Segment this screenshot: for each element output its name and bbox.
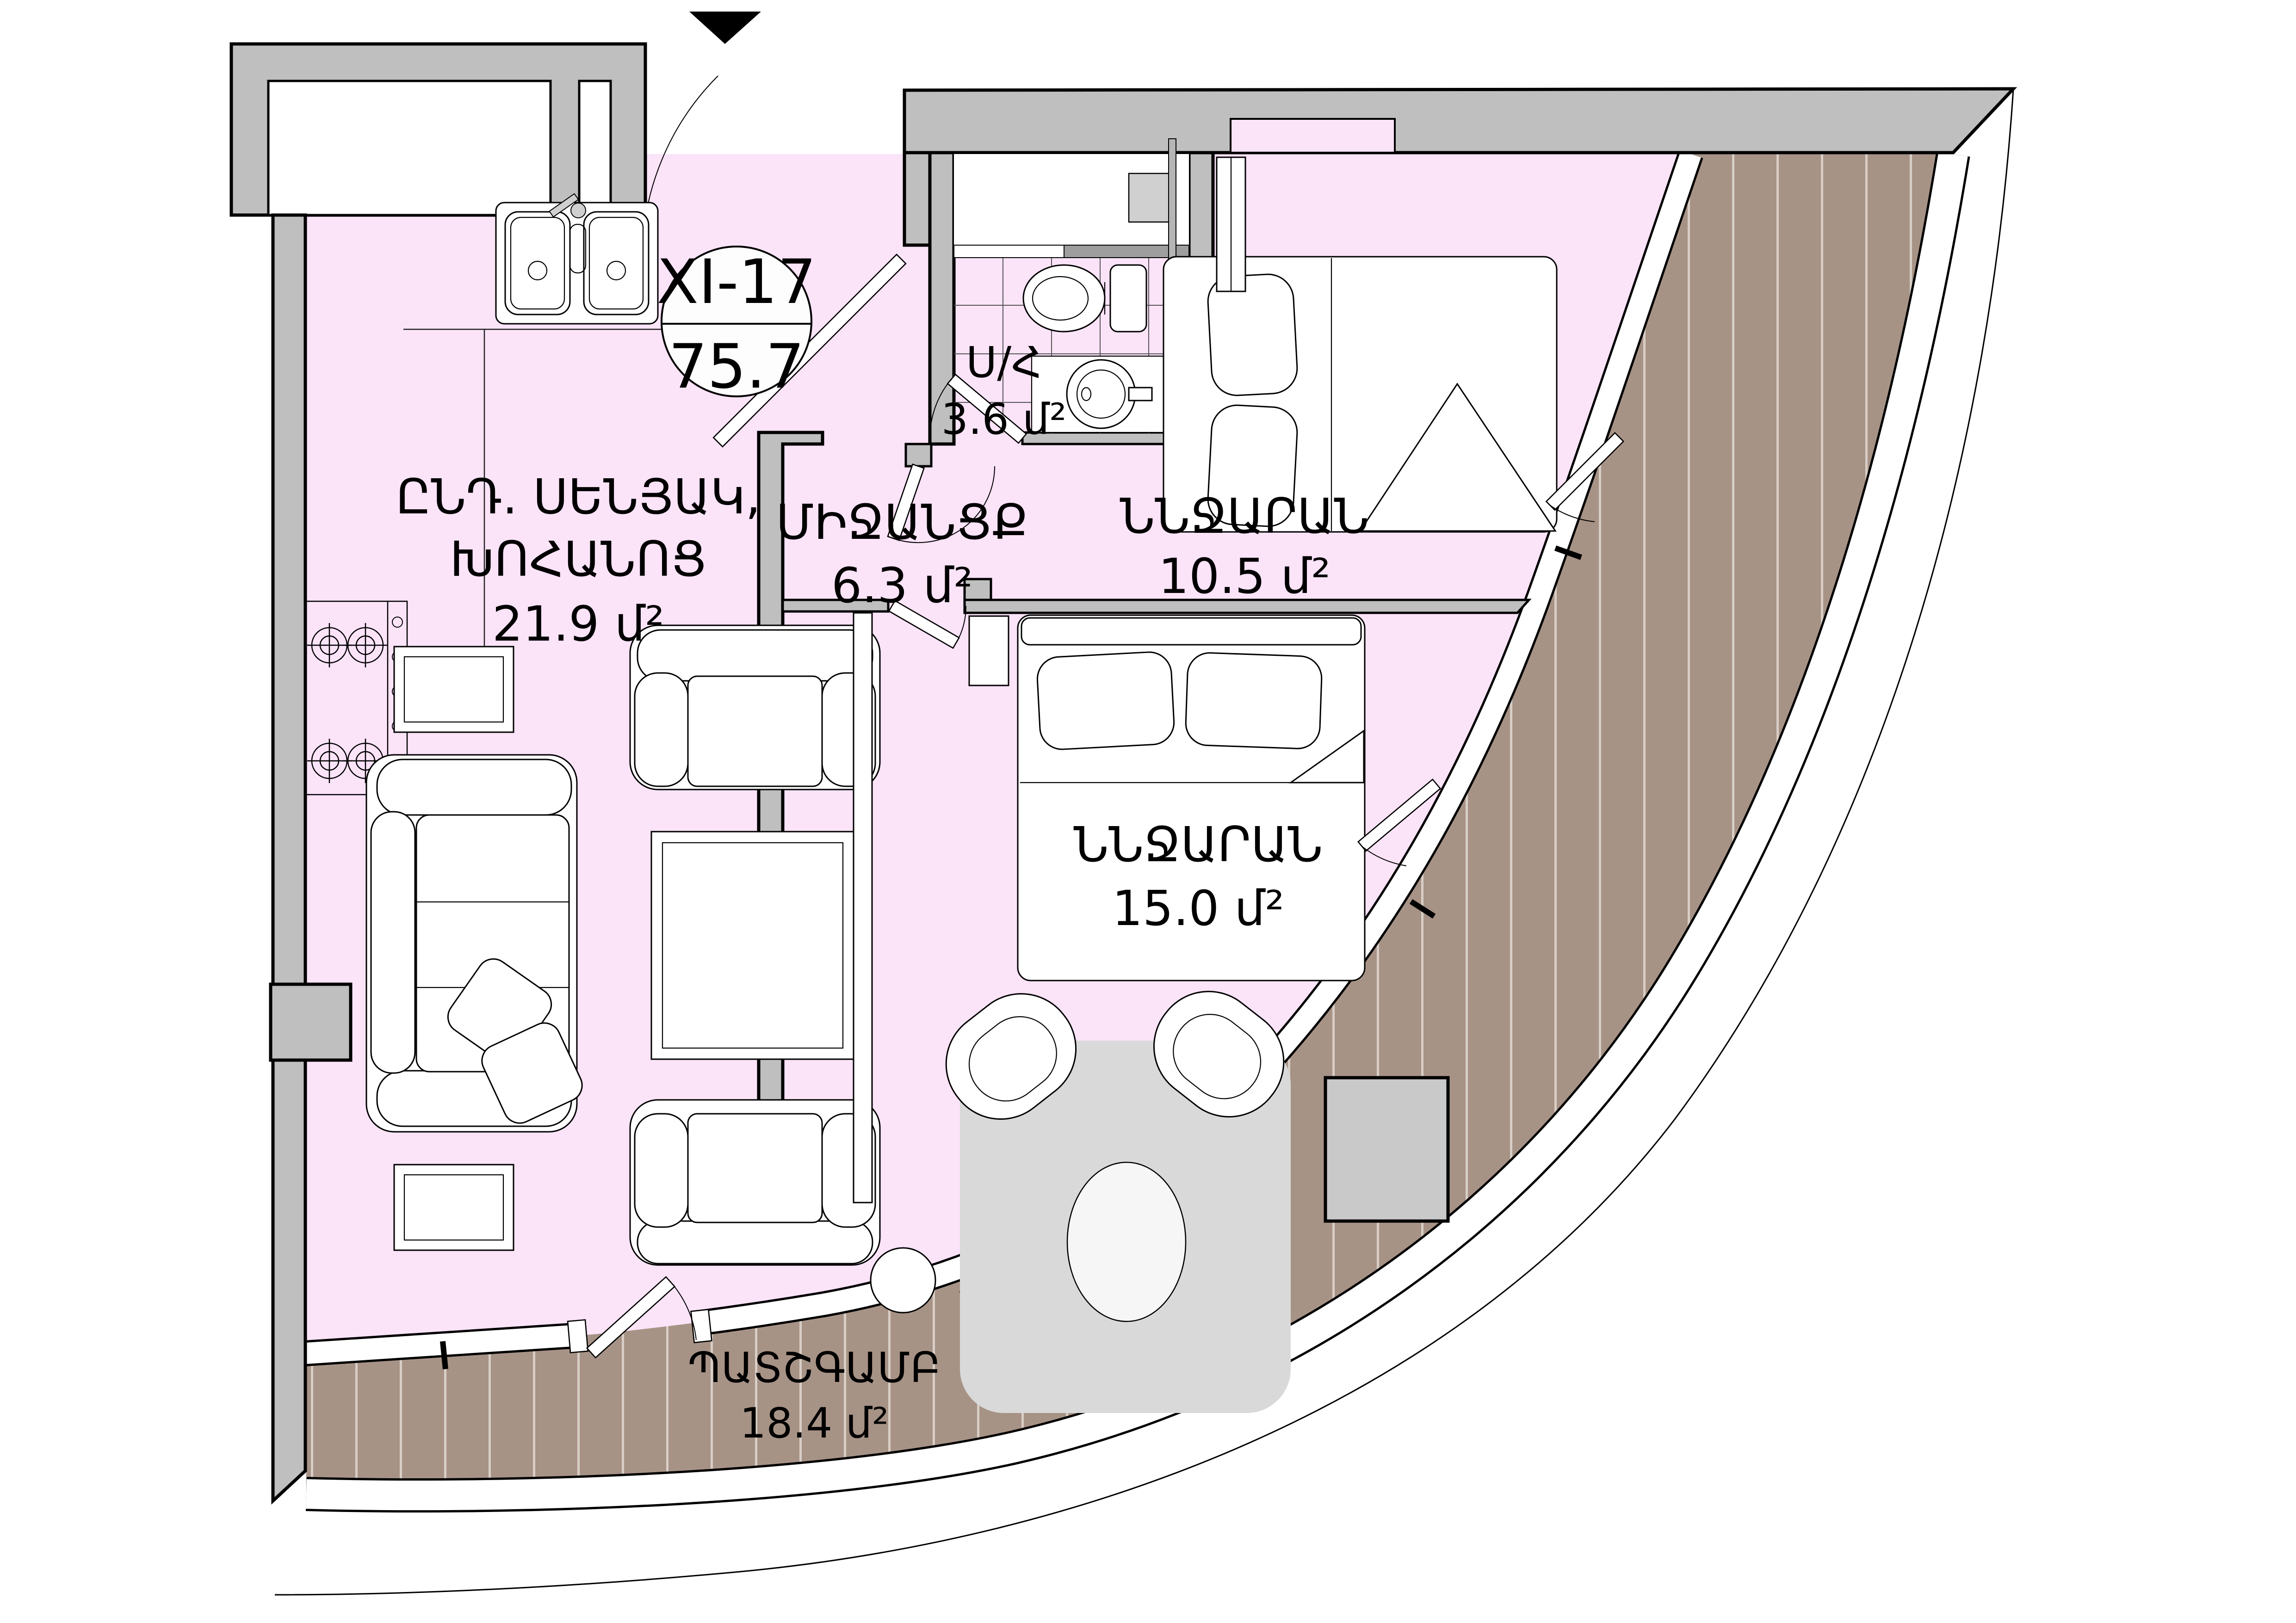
shower-unit-icon — [1129, 173, 1171, 222]
nightstand — [969, 616, 1009, 685]
sofa — [366, 755, 588, 1132]
unit-code: XI-17 — [657, 247, 817, 318]
hallway-area: 6.3 մ² — [831, 557, 973, 614]
floor-plan-page: ԸՆԴ. ՍԵՆՅԱԿ, ԽՈՀԱՆՈՑ 21.9 մ² ՄԻՋԱՆՑՔ 6.3… — [0, 0, 2296, 1623]
bedroom-large-area: 15.0 մ² — [1112, 880, 1284, 937]
hallway-label: ՄԻՋԱՆՑՔ — [776, 494, 1028, 550]
left-wall-pier — [271, 984, 351, 1060]
balcony-area: 18.4 մ² — [740, 1399, 889, 1448]
coffee-table — [651, 832, 854, 1059]
bedroom-small-label: ՆՆՋԱՐԱՆ — [1120, 488, 1369, 544]
living-kitchen-label-2: ԽՈՀԱՆՈՑ — [450, 531, 706, 587]
kitchen-sink-icon — [496, 194, 658, 324]
oval-table — [1067, 1162, 1186, 1321]
niche-opening-2 — [579, 81, 611, 215]
entrance-arrow-icon — [689, 12, 761, 44]
living-kitchen-label-1: ԸՆԴ. ՍԵՆՅԱԿ, — [396, 469, 761, 525]
shower-door — [954, 245, 1064, 258]
side-table — [394, 647, 514, 732]
bedroom-large-label: ՆՆՋԱՐԱՆ — [1074, 816, 1323, 873]
shower-bar-icon — [1169, 139, 1176, 259]
floor-plan-canvas: ԸՆԴ. ՍԵՆՅԱԿ, ԽՈՀԱՆՈՑ 21.9 մ² ՄԻՋԱՆՑՔ 6.3… — [0, 0, 2296, 1623]
top-wall-window-recess — [1231, 119, 1395, 153]
round-side-table — [871, 1248, 935, 1313]
living-kitchen-area: 21.9 մ² — [492, 596, 664, 652]
side-table — [394, 1165, 514, 1250]
wall-closet-strip — [854, 613, 872, 1203]
hall-door-post — [906, 444, 931, 466]
unit-total-area: 75.7 — [668, 331, 805, 402]
top-wall — [904, 89, 2013, 153]
balcony-label: ՊԱՏՇԳԱՄԲ — [688, 1344, 941, 1392]
bathroom-area: 3.6 մ² — [941, 395, 1067, 444]
cabinet-block — [1325, 1078, 1448, 1221]
armchair — [630, 1100, 880, 1265]
left-wall — [273, 215, 305, 1501]
unit-badge: XI-17 75.7 — [657, 247, 817, 402]
armchair — [630, 625, 880, 790]
bathroom-label: Ս/Հ — [966, 338, 1042, 387]
niche-opening — [268, 81, 551, 215]
entry-jamb — [904, 153, 930, 245]
toilet-icon — [1023, 265, 1146, 332]
wardrobe — [1217, 157, 1245, 291]
bedroom-small-area: 10.5 մ² — [1158, 548, 1331, 605]
